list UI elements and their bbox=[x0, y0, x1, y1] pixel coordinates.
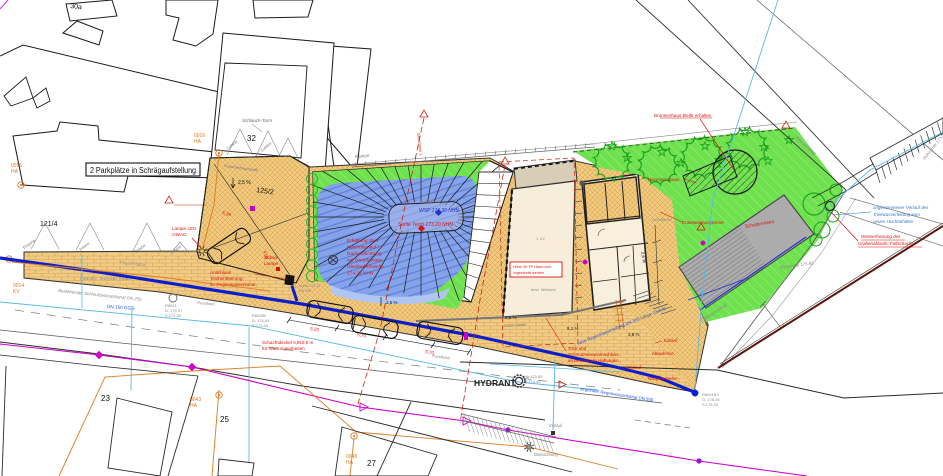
svg-text:2,5 %: 2,5 % bbox=[505, 315, 517, 320]
svg-text:an bestehende Haftungen: an bestehende Haftungen bbox=[568, 358, 619, 363]
svg-text:23: 23 bbox=[101, 394, 110, 403]
svg-text:Schmutzwasseranschluss: Schmutzwasseranschluss bbox=[568, 352, 619, 357]
svg-text:Sohle 173,20: Sohle 173,20 bbox=[299, 284, 320, 288]
svg-text:Wasserfassung des: Wasserfassung des bbox=[861, 234, 901, 239]
svg-text:Grünfläche: Grünfläche bbox=[652, 217, 672, 222]
svg-text:3,8 %: 3,8 % bbox=[628, 332, 640, 337]
svg-text:Sohle Teich 173,20 NHN: Sohle Teich 173,20 NHN bbox=[398, 222, 453, 228]
svg-text:Landschnitt: Landschnitt bbox=[420, 199, 441, 204]
svg-text:HA: HA bbox=[11, 169, 19, 175]
svg-text:32: 32 bbox=[247, 134, 256, 143]
svg-text:5,1 %: 5,1 % bbox=[567, 326, 579, 331]
svg-text:Ablaufrinne: Ablaufrinne bbox=[652, 351, 674, 356]
svg-text:Abbau: Abbau bbox=[264, 255, 278, 260]
svg-text:zugeschnitt werden: zugeschnitt werden bbox=[513, 271, 544, 275]
svg-text:25: 25 bbox=[220, 415, 229, 424]
svg-text:Trink und: Trink und bbox=[568, 346, 587, 351]
svg-text:Beleuchtung: Beleuchtung bbox=[534, 452, 559, 457]
svg-text:Lampe LED: Lampe LED bbox=[172, 226, 197, 231]
svg-text:HA: HA bbox=[190, 403, 198, 409]
svg-text:HYDRANT: HYDRANT bbox=[474, 378, 516, 388]
svg-text:HA: HA bbox=[346, 460, 354, 466]
svg-text:Teichentleerung: Teichentleerung bbox=[210, 276, 243, 281]
svg-text:27: 27 bbox=[367, 459, 376, 468]
svg-text:Schachtdeckel 0,8x0,8 m: Schachtdeckel 0,8x0,8 m bbox=[262, 340, 313, 345]
svg-text:neuen Hochbehälter: neuen Hochbehälter bbox=[873, 219, 914, 224]
svg-text:Lampe: Lampe bbox=[264, 261, 278, 266]
svg-text:Schlauch-Turm: Schlauch-Turm bbox=[242, 118, 272, 123]
svg-text:OWAG: OWAG bbox=[172, 232, 187, 237]
svg-text:2,5 %: 2,5 % bbox=[386, 300, 398, 305]
svg-text:best. Wohnhs.: best. Wohnhs. bbox=[531, 287, 557, 292]
svg-text:DN 150: DN 150 bbox=[299, 289, 311, 293]
svg-text:angenommener Verlauf des: angenommener Verlauf des bbox=[873, 205, 929, 210]
svg-text:Dachabdichtung: Dachabdichtung bbox=[347, 251, 382, 257]
svg-text:30a: 30a bbox=[70, 3, 82, 11]
svg-text:Einlauf: Einlauf bbox=[628, 365, 642, 370]
svg-text:für Wartungsarbeiten: für Wartungsarbeiten bbox=[262, 346, 305, 351]
svg-text:mit Grundablass: mit Grundablass bbox=[347, 258, 383, 264]
svg-text:174,35 NHN: 174,35 NHN bbox=[347, 271, 374, 277]
svg-text:S:175,29: S:175,29 bbox=[702, 402, 719, 407]
svg-text:KV: KV bbox=[13, 289, 20, 295]
svg-text:Trinkwasserleitung zum: Trinkwasserleitung zum bbox=[873, 212, 920, 217]
svg-text:Kelchüberlauf /: Kelchüberlauf / bbox=[347, 245, 380, 251]
svg-text:Entwässerungsrinne: Entwässerungsrinne bbox=[682, 220, 724, 225]
svg-text:Einlauf: Einlauf bbox=[664, 338, 678, 343]
svg-text:S:173,44: S:173,44 bbox=[252, 323, 269, 328]
svg-text:Anschluss: Anschluss bbox=[210, 270, 232, 275]
svg-text:Grabenablaufs: Fallschacht: Grabenablaufs: Fallschacht bbox=[858, 241, 914, 246]
svg-text:Höhe OK FF Haus noch: Höhe OK FF Haus noch bbox=[513, 265, 551, 269]
svg-text:1 1/2: 1 1/2 bbox=[536, 236, 546, 241]
svg-text:Erhaltung über: Erhaltung über bbox=[347, 238, 379, 244]
svg-text:2,5 %: 2,5 % bbox=[238, 180, 251, 186]
svg-text:2 Parkplätze in Schrägaufstell: 2 Parkplätze in Schrägaufstellung bbox=[90, 166, 196, 175]
svg-text:G:174,43: G:174,43 bbox=[524, 379, 541, 384]
svg-text:Einlauf: Einlauf bbox=[549, 423, 563, 428]
svg-text:Brunnenhaus bleibt erhalten: Brunnenhaus bleibt erhalten bbox=[654, 113, 712, 118]
svg-text:Überlaufschwelle: Überlaufschwelle bbox=[347, 263, 384, 270]
svg-text:Rangegeländer: Rangegeländer bbox=[648, 376, 678, 381]
svg-text:Natursteinmauer: Natursteinmauer bbox=[648, 177, 680, 182]
svg-text:S:172,34: S:172,34 bbox=[165, 313, 182, 318]
svg-text:HA: HA bbox=[194, 139, 202, 145]
